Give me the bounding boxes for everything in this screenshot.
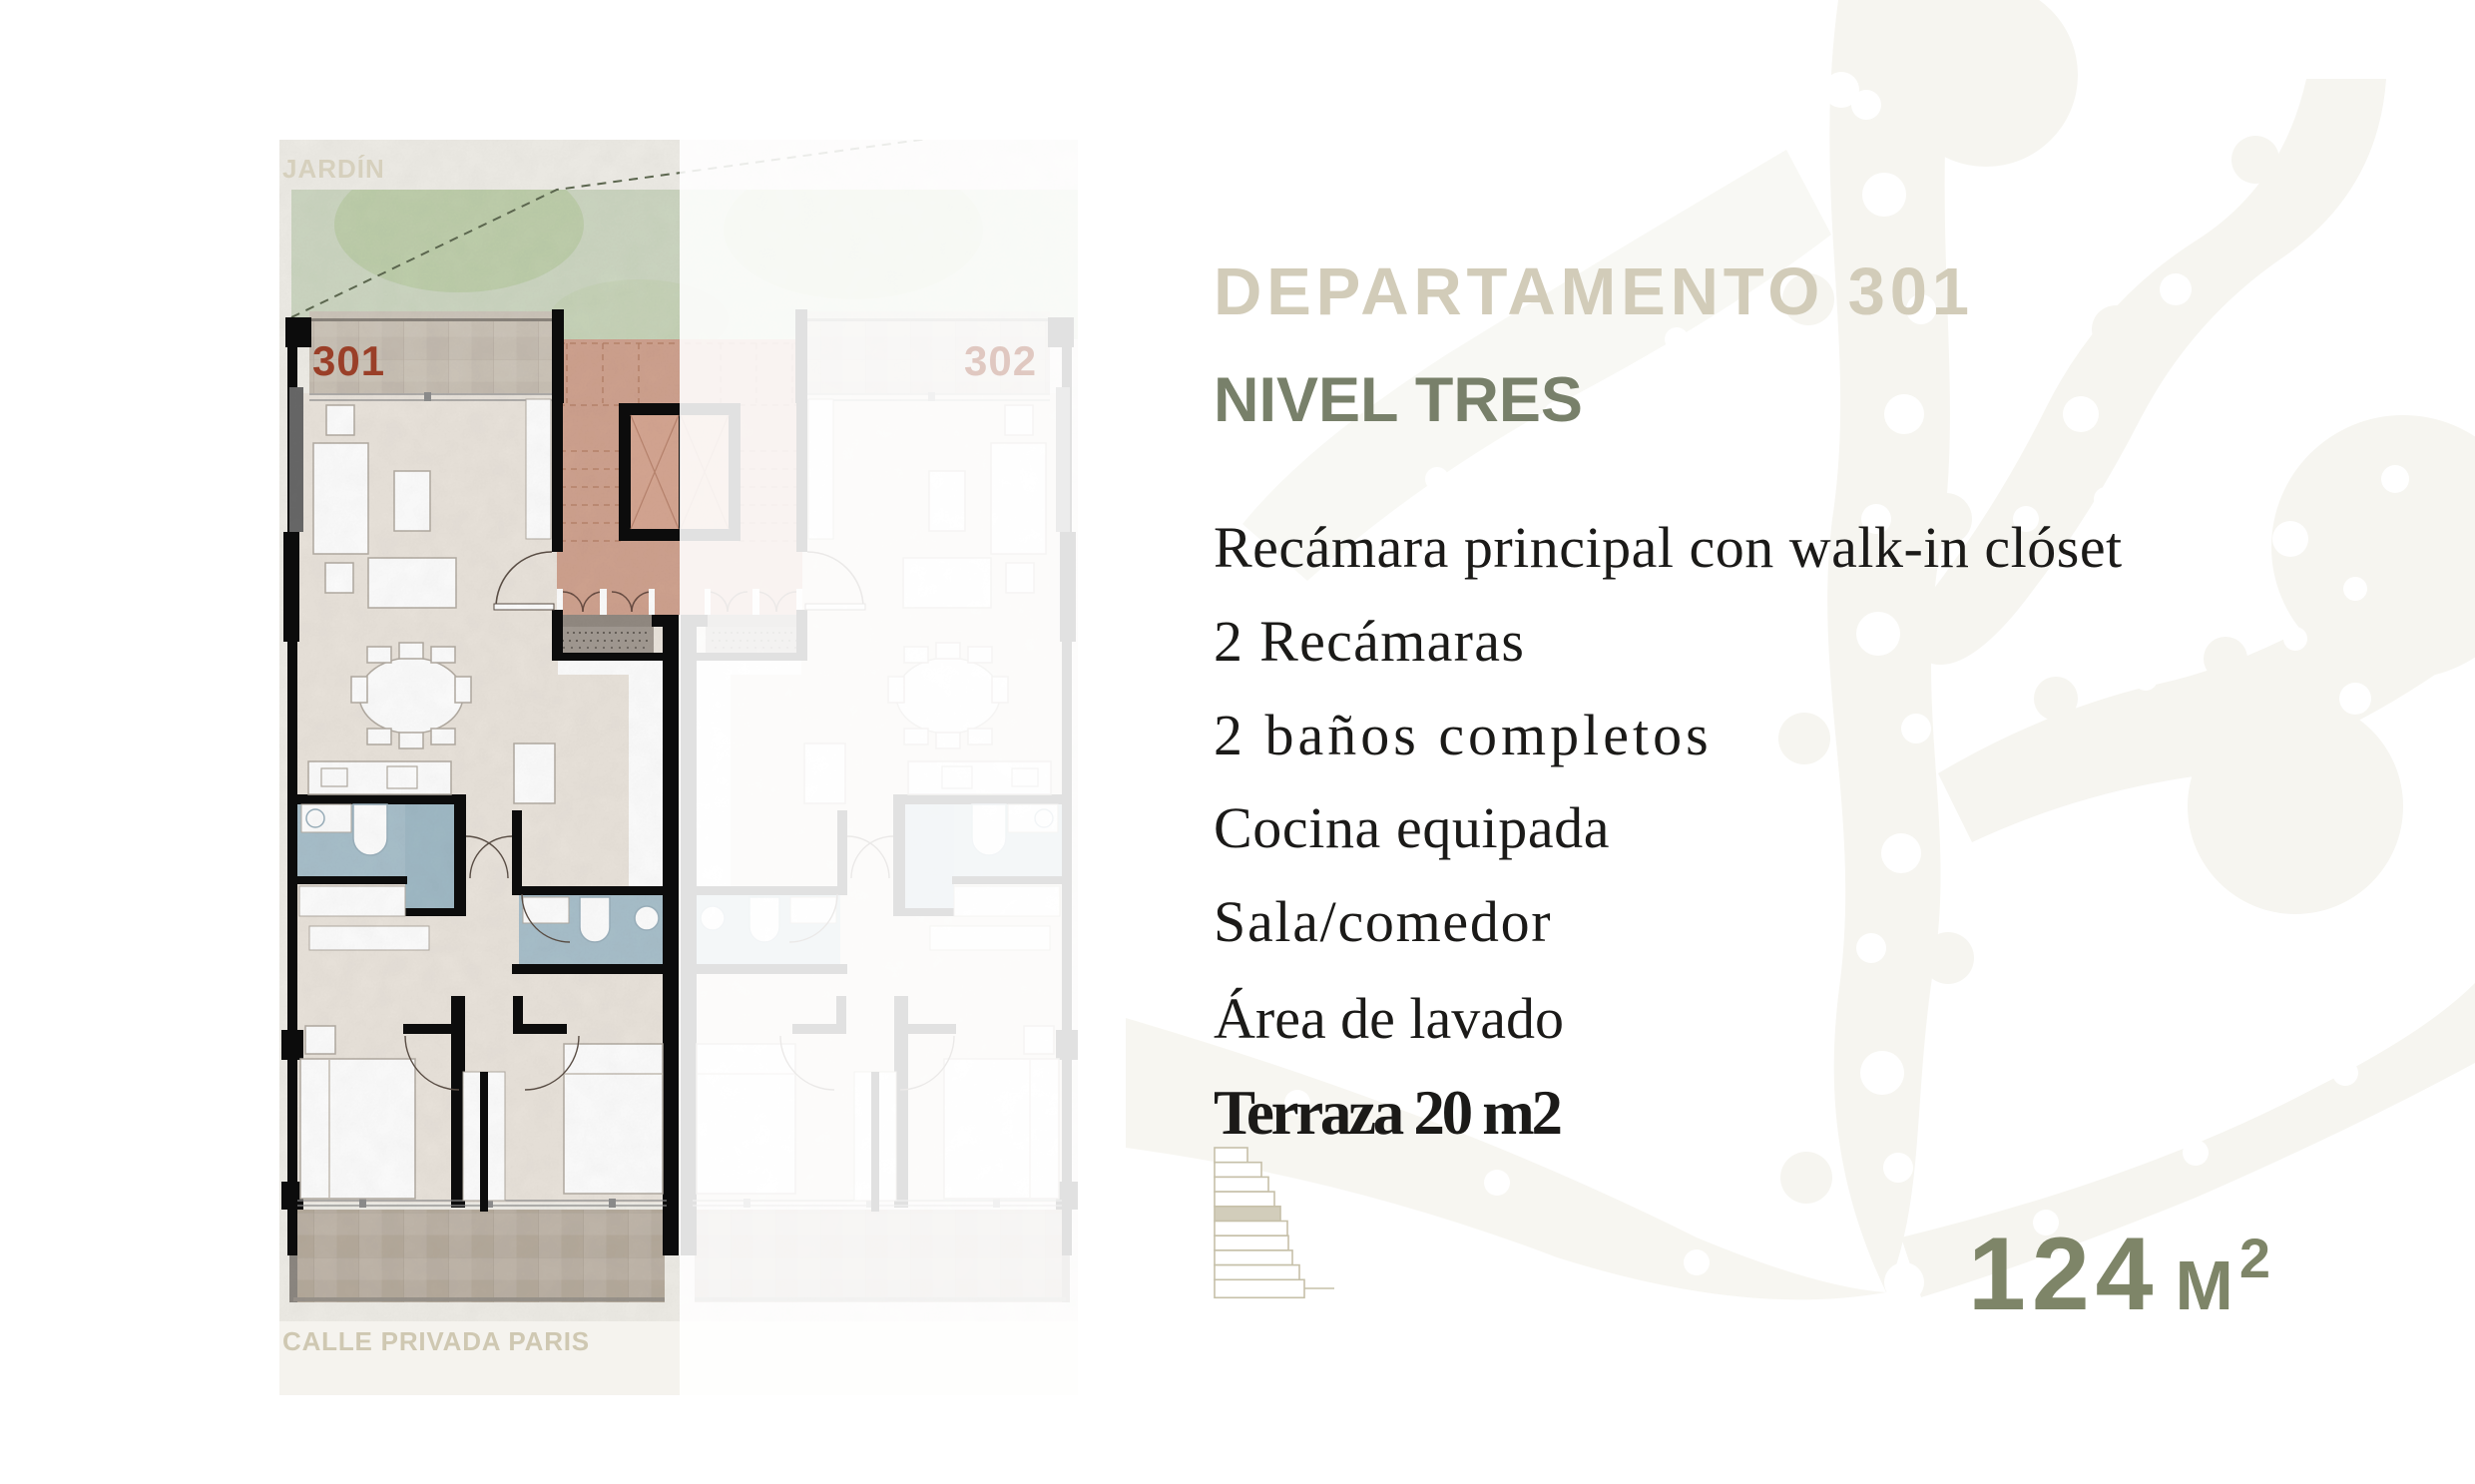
- svg-text:Área de lavado: Área de lavado: [1214, 986, 1564, 1051]
- svg-text:Terraza 20 m2: Terraza 20 m2: [1214, 1078, 1560, 1148]
- svg-text:Cocina equipada: Cocina equipada: [1214, 795, 1610, 860]
- svg-text:DEPARTAMENTO 301: DEPARTAMENTO 301: [1214, 254, 1974, 329]
- svg-text:Sala/comedor: Sala/comedor: [1214, 889, 1552, 954]
- svg-text:Recámara principal con walk-in: Recámara principal con walk-in clóset: [1214, 515, 2123, 580]
- svg-text:CALLE PRIVADA PARIS: CALLE PRIVADA PARIS: [282, 1326, 590, 1356]
- svg-text:JARDÍN: JARDÍN: [282, 154, 385, 184]
- svg-text:302: 302: [964, 337, 1037, 384]
- svg-text:2 Recámaras: 2 Recámaras: [1214, 609, 1525, 674]
- svg-text:2 baños completos: 2 baños completos: [1214, 703, 1713, 767]
- svg-text:NIVEL TRES: NIVEL TRES: [1214, 365, 1583, 435]
- svg-text:301: 301: [312, 337, 385, 384]
